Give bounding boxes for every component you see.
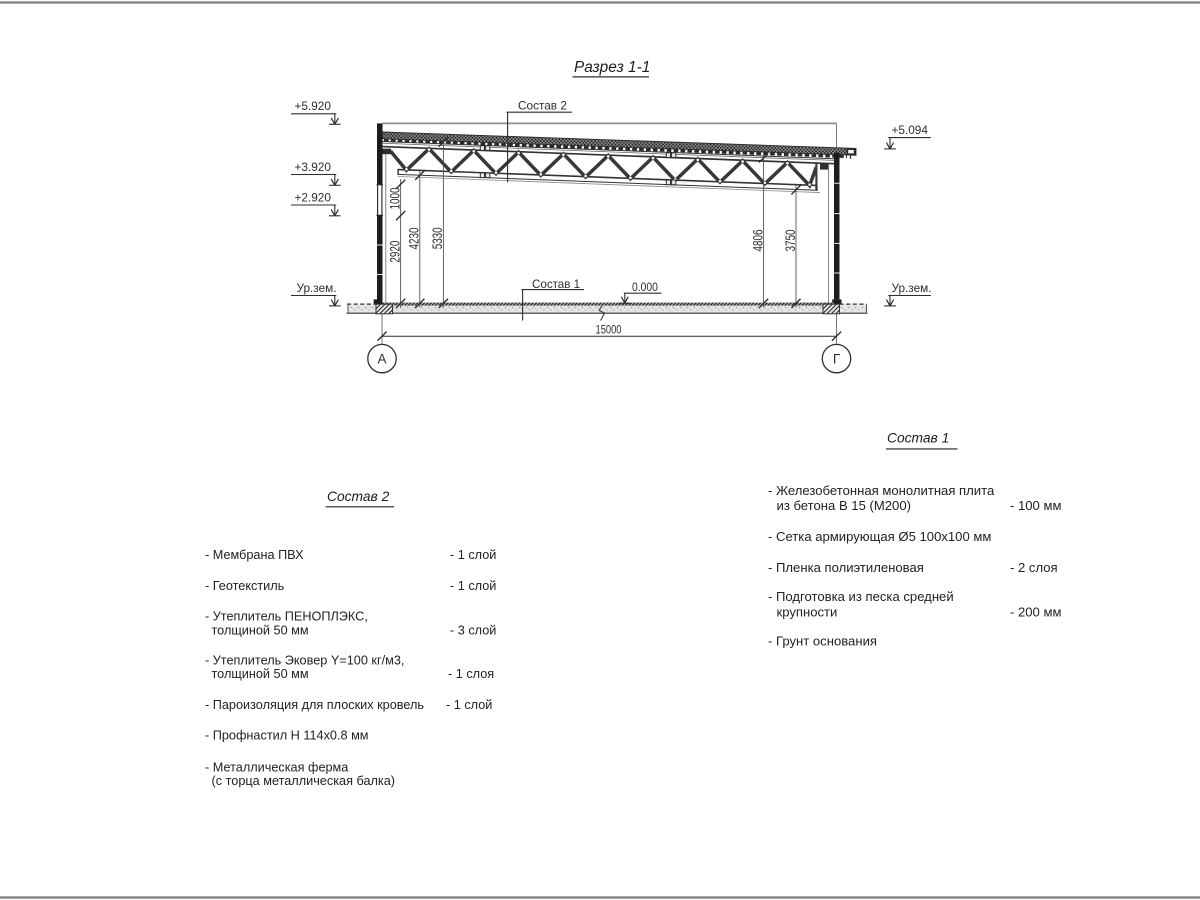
svg-text:Состав 1: Состав 1: [887, 431, 949, 446]
svg-text:Ур.зем.: Ур.зем.: [297, 281, 337, 295]
svg-text:- Утеплитель ПЕНОПЛЭКС,: - Утеплитель ПЕНОПЛЭКС,: [205, 610, 368, 624]
svg-text:5330: 5330: [429, 227, 445, 249]
svg-text:толщиной 50 мм: толщиной 50 мм: [212, 623, 309, 637]
svg-text:Г: Г: [833, 351, 841, 366]
svg-text:Разрез 1-1: Разрез 1-1: [574, 59, 650, 76]
svg-text:А: А: [377, 351, 386, 366]
svg-text:крупности: крупности: [777, 604, 838, 619]
svg-text:Ур.зем.: Ур.зем.: [892, 281, 932, 295]
svg-text:- Пленка полиэтиленовая: - Пленка полиэтиленовая: [768, 560, 924, 575]
svg-text:4230: 4230: [406, 227, 422, 249]
svg-text:- Подготовка из песка средней: - Подготовка из песка средней: [768, 589, 954, 604]
svg-text:2920: 2920: [386, 240, 402, 262]
svg-text:- Геотекстиль: - Геотекстиль: [205, 579, 285, 593]
svg-text:- Железобетонная монолитная п: - Железобетонная монолитная плита: [768, 483, 995, 498]
svg-text:3750: 3750: [782, 229, 798, 251]
svg-text:- 1 слой: - 1 слой: [450, 548, 496, 562]
svg-text:- 2 слоя: - 2 слоя: [1010, 560, 1058, 575]
svg-text:Состав 1: Состав 1: [532, 278, 580, 291]
svg-text:- Мембрана ПВХ: - Мембрана ПВХ: [205, 548, 304, 562]
svg-text:из бетона В 15 (М200): из бетона В 15 (М200): [777, 498, 912, 513]
svg-text:Состав 2: Состав 2: [518, 98, 567, 112]
svg-text:- 100 мм: - 100 мм: [1010, 498, 1062, 513]
svg-text:- 3 слой: - 3 слой: [450, 623, 496, 637]
svg-text:- Грунт основания: - Грунт основания: [768, 633, 877, 648]
svg-text:- Профнастил Н 114х0.8 мм: - Профнастил Н 114х0.8 мм: [205, 729, 369, 743]
svg-text:+5.094: +5.094: [892, 123, 929, 137]
svg-text:- 1 слой: - 1 слой: [450, 579, 496, 593]
svg-text:+3.920: +3.920: [295, 160, 332, 174]
svg-text:- 200 мм: - 200 мм: [1010, 604, 1062, 619]
svg-text:- Сетка армирующая Ø5 100х100: - Сетка армирующая Ø5 100х100 мм: [768, 529, 991, 544]
svg-text:- Пароизоляция для плоских кро: - Пароизоляция для плоских кровель: [205, 698, 424, 712]
svg-text:(с торца металлическая балка): (с торца металлическая балка): [212, 774, 396, 788]
svg-text:4806: 4806: [749, 229, 765, 251]
svg-text:толщиной 50 мм: толщиной 50 мм: [212, 667, 309, 681]
svg-text:1000: 1000: [386, 187, 402, 209]
svg-text:- Утеплитель Эковер Y=100 кг/м: - Утеплитель Эковер Y=100 кг/м3,: [205, 654, 404, 668]
svg-text:0.000: 0.000: [632, 281, 658, 294]
svg-text:- 1 слоя: - 1 слоя: [448, 667, 494, 681]
svg-text:+2.920: +2.920: [295, 190, 332, 204]
svg-text:Состав 2: Состав 2: [327, 489, 390, 504]
svg-text:15000: 15000: [596, 323, 622, 337]
svg-text:- 1 слой: - 1 слой: [446, 698, 492, 712]
svg-text:+5.920: +5.920: [295, 99, 332, 113]
svg-text:- Металлическая ферма: - Металлическая ферма: [205, 760, 349, 774]
